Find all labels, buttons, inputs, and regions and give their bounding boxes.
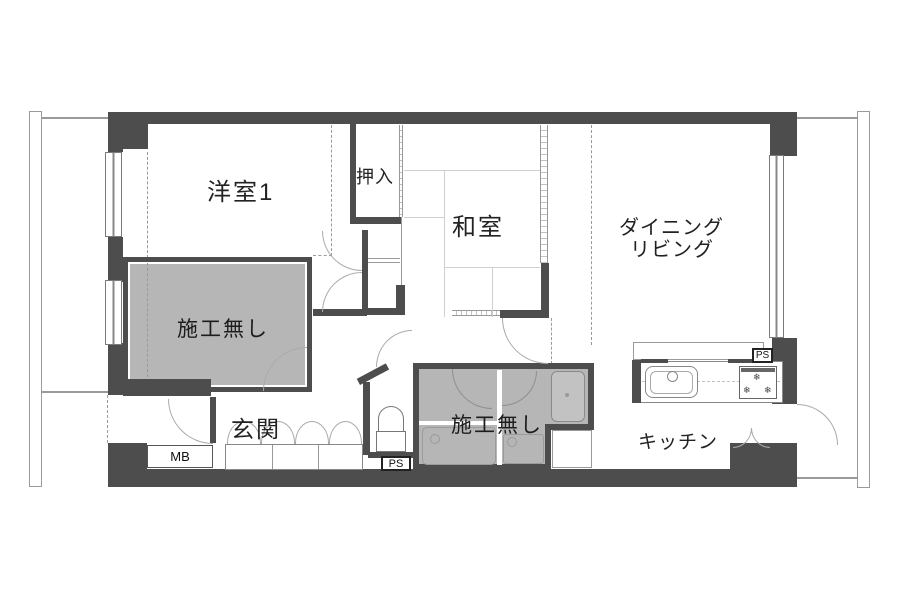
snowflake-icon: ❄ <box>753 373 761 382</box>
dashed-line-porch <box>107 395 108 443</box>
closet-door-arc <box>322 272 362 312</box>
label-no-construction-left: 施工無し <box>177 313 269 343</box>
label-no-construction-center: 施工無し <box>451 409 543 439</box>
vanity-bowl <box>430 434 440 444</box>
closet-door-arc <box>322 231 362 271</box>
pipe-space-label: PS <box>756 350 769 361</box>
dashed-line <box>551 318 552 364</box>
closet-shelf <box>368 262 400 263</box>
pipe-space-bottom: PS <box>381 456 411 471</box>
shoe-cabinet <box>225 444 363 470</box>
window <box>769 155 784 338</box>
wall-top <box>108 112 797 124</box>
wall-left <box>108 124 123 152</box>
faucet-icon <box>667 371 678 382</box>
room-label-living: リビング <box>630 233 714 262</box>
window <box>105 152 122 237</box>
tatami-line <box>404 170 540 171</box>
living-door-arc <box>502 318 548 364</box>
balcony-divider <box>42 117 108 119</box>
wall-closet <box>362 230 368 314</box>
shoe-cabinet-door-arc <box>329 421 362 445</box>
wall-counter-top <box>728 359 755 363</box>
snowflake-icon: ❄ <box>743 386 751 395</box>
dashed-line <box>147 152 148 258</box>
room-label-entrance: 玄関 <box>231 410 281 444</box>
pipe-space-right: PS <box>752 348 773 363</box>
toilet-tank-icon <box>376 431 406 452</box>
window <box>105 280 122 345</box>
oshiire-sliding-door <box>399 125 403 217</box>
pipe-space-label: PS <box>389 458 404 470</box>
entrance-door-arc <box>168 399 213 444</box>
wall-counter-cap <box>632 360 641 403</box>
kitchen-side-cabinet <box>552 430 592 468</box>
bathtub-drain <box>565 393 569 397</box>
room-label-japanese-room: 和室 <box>452 207 504 242</box>
balcony-divider <box>42 391 108 393</box>
tatami-line <box>404 217 444 218</box>
shoe-cabinet-divider <box>272 445 273 469</box>
tatami-line <box>492 267 493 317</box>
wall-washitsu-ld <box>541 263 549 318</box>
balcony-divider <box>797 477 857 479</box>
room-label-western-room-1: 洋室1 <box>207 172 274 207</box>
shoe-cabinet-divider <box>318 445 319 469</box>
balcony-rail-left <box>29 111 42 487</box>
wall-oshiire-bottom <box>350 217 402 224</box>
floorplan: MB PS ❄ ❄ ❄ PS 洋 <box>0 0 900 600</box>
toilet-door-arc <box>376 330 412 367</box>
balcony-rail-right <box>857 111 870 488</box>
balcony-divider <box>797 117 857 119</box>
tatami-line <box>444 170 445 317</box>
wall-left <box>108 237 123 282</box>
meter-box-label: MB <box>170 449 190 464</box>
wall-corner-top-right <box>770 112 797 156</box>
shoe-cabinet-door-arc <box>295 421 329 445</box>
snowflake-icon: ❄ <box>764 386 772 395</box>
wall-bottom <box>108 469 797 487</box>
room-label-closet: 押入 <box>356 163 394 189</box>
room-label-kitchen: キッチン <box>638 427 718 454</box>
dashed-line <box>147 263 148 377</box>
dashed-line <box>591 125 592 345</box>
wall-counter-top <box>641 359 668 363</box>
wall-toilet-left <box>363 382 370 455</box>
meter-box: MB <box>147 445 213 468</box>
washitsu-ld-sliding-door <box>540 125 548 263</box>
kitchen-upper-cabinet <box>633 342 764 360</box>
wall-corridor-stub <box>396 285 405 310</box>
closet-shelf <box>368 258 400 259</box>
wall-below-gray-box <box>123 379 211 396</box>
balcony-door-arc <box>797 404 838 445</box>
